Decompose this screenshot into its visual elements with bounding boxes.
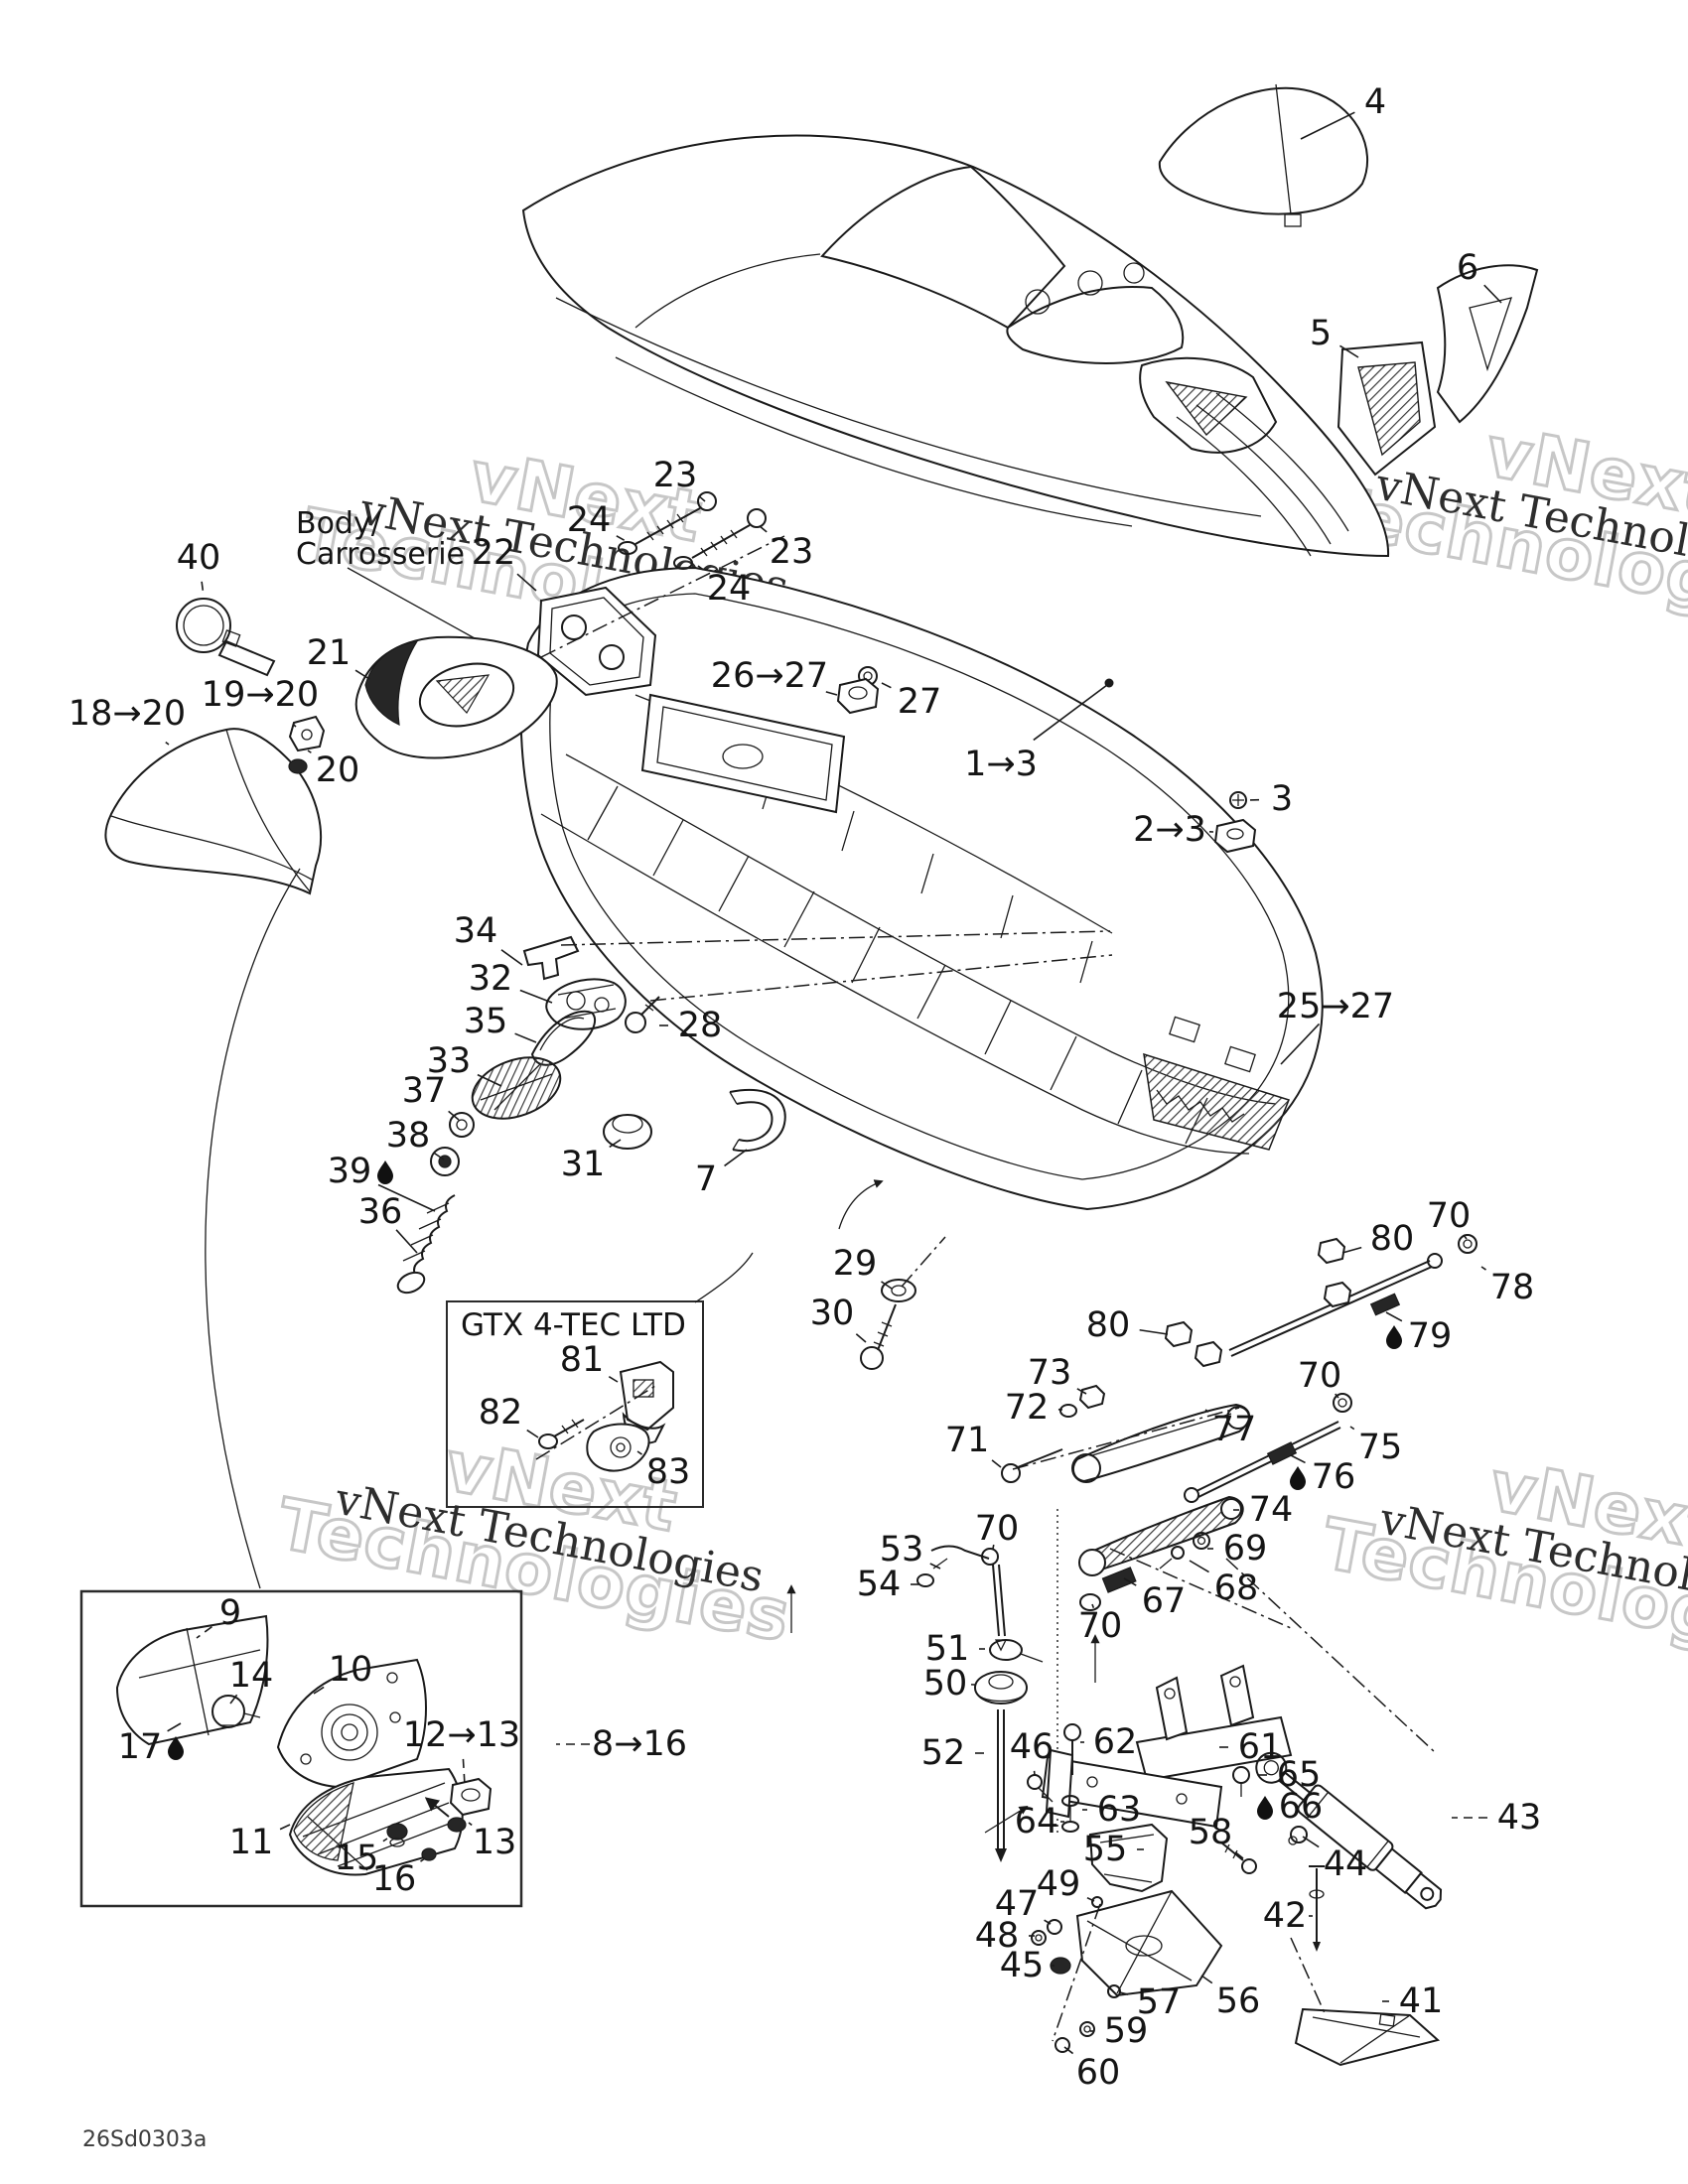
leader-line — [856, 1334, 866, 1342]
part-number-label: 1→3 — [964, 745, 1038, 784]
part-number-label: 54 — [857, 1565, 902, 1604]
callout-26-27: 26→27 — [711, 656, 837, 696]
part-number-label: 72 — [1005, 1388, 1050, 1428]
leader-line — [202, 582, 204, 596]
part-number-label: 41 — [1399, 1981, 1444, 2021]
part-number-label: 61 — [1238, 1727, 1283, 1767]
part-number-label: 28 — [678, 1006, 723, 1045]
callout-79: 79 — [1386, 1312, 1452, 1356]
part-number-label: 35 — [464, 1002, 508, 1041]
leader-line — [463, 1759, 465, 1785]
leader-line — [280, 1825, 290, 1830]
callout-54: 54 — [857, 1565, 921, 1604]
callout-31: 31 — [561, 1140, 621, 1184]
part-number-label: 18→20 — [69, 694, 186, 734]
part-number-label: 76 — [1312, 1457, 1356, 1497]
part-number-label: 23 — [653, 456, 698, 495]
callout-52: 52 — [921, 1733, 985, 1773]
part-number-label: 43 — [1497, 1798, 1542, 1838]
part-number-label: 67 — [1142, 1581, 1187, 1621]
part-number-label: 17 — [118, 1727, 163, 1767]
part-number-label: 64 — [1015, 1802, 1059, 1842]
part-number-label: 9 — [219, 1593, 241, 1633]
drawing-code: 26Sd0303a — [82, 2127, 207, 2152]
leader-line — [1291, 1455, 1306, 1462]
callout-16: 16 — [372, 1858, 425, 1899]
part-number-label: 53 — [880, 1530, 924, 1570]
leader-line — [515, 1033, 536, 1042]
callout-81: 81 — [560, 1340, 618, 1382]
part-number-label: 51 — [925, 1629, 970, 1669]
callout-70: 70 — [1427, 1196, 1472, 1239]
part-number-label: 83 — [646, 1452, 691, 1492]
part-number-label: 70 — [1427, 1196, 1472, 1236]
callout-77: 77 — [1205, 1410, 1256, 1449]
part-number-label: 11 — [229, 1823, 274, 1862]
part-number-label: 12→13 — [403, 1715, 520, 1755]
part-number-label: 49 — [1037, 1864, 1081, 1904]
callout-68: 68 — [1190, 1561, 1258, 1608]
part-number-label: 23 — [770, 532, 814, 572]
leader-line — [527, 1431, 538, 1437]
part-number-label: 6 — [1457, 248, 1478, 288]
part-number-label: 4 — [1364, 82, 1386, 122]
callout-35: 35 — [464, 1002, 536, 1042]
part-number-label: 42 — [1263, 1896, 1308, 1936]
leader-line — [469, 1823, 472, 1825]
callout-8-16: 8→16 — [556, 1724, 687, 1764]
leader-line — [1481, 1267, 1486, 1270]
leader-line — [1190, 1561, 1209, 1572]
part-number-label: 73 — [1028, 1353, 1072, 1393]
leader-line — [1350, 1427, 1354, 1430]
part-number-label: 40 — [177, 538, 221, 578]
leader-line — [308, 751, 311, 752]
callout-59: 59 — [1090, 2011, 1148, 2051]
part-number-label: 38 — [386, 1116, 431, 1156]
callout-19-20: 19→20 — [202, 675, 319, 727]
callout-70: 70 — [1078, 1604, 1123, 1646]
part-number-label: 31 — [561, 1145, 606, 1184]
callout-36: 36 — [358, 1192, 417, 1253]
callout-71: 71 — [945, 1421, 1001, 1467]
bracket-cluster-drawing — [791, 1181, 1291, 2052]
part-number-label: 46 — [1010, 1727, 1055, 1767]
callout-18-20: 18→20 — [69, 694, 186, 745]
part-number-label: 70 — [975, 1509, 1020, 1549]
callout-40: 40 — [177, 538, 221, 596]
callout-80: 80 — [1342, 1219, 1414, 1259]
part-number-label: 7 — [695, 1160, 717, 1199]
part-number-label: 16 — [372, 1859, 417, 1899]
callout-67: 67 — [1124, 1578, 1186, 1621]
callout-45: 45 — [1000, 1946, 1055, 1985]
leader-line — [992, 1460, 1001, 1467]
part-number-label: 78 — [1490, 1268, 1535, 1307]
part-number-label: 79 — [1408, 1316, 1453, 1356]
callout-70: 70 — [1298, 1356, 1342, 1398]
part-number-label: 70 — [1078, 1606, 1123, 1646]
part-number-label: 21 — [307, 633, 352, 673]
part-number-label: 68 — [1214, 1569, 1259, 1608]
part-number-label: 24 — [707, 569, 752, 609]
part-number-label: 74 — [1249, 1490, 1294, 1530]
part-number-label: 60 — [1076, 2053, 1121, 2093]
part-number-label: 63 — [1097, 1790, 1142, 1830]
part-number-label: 66 — [1279, 1787, 1324, 1827]
leader-line — [725, 1150, 747, 1165]
callout-60: 60 — [1064, 2047, 1120, 2093]
part-number-label: 71 — [945, 1421, 990, 1460]
callout-49: 49 — [1037, 1864, 1094, 1904]
callout-10: 10 — [314, 1650, 372, 1694]
part-number-label: 10 — [329, 1650, 373, 1690]
callout-78: 78 — [1481, 1267, 1534, 1307]
callout-42: 42 — [1263, 1896, 1313, 1936]
part-number-label: 75 — [1358, 1428, 1403, 1467]
part-number-label: 50 — [923, 1664, 968, 1704]
part-number-label: 45 — [1000, 1946, 1045, 1985]
callout-83: 83 — [637, 1451, 690, 1492]
callout-34: 34 — [454, 911, 522, 965]
callout-32: 32 — [469, 959, 552, 1003]
leader-line — [1386, 1312, 1402, 1321]
leader-line — [609, 1377, 618, 1382]
part-number-label: 81 — [560, 1340, 605, 1380]
part-number-label: 82 — [479, 1393, 523, 1433]
part-number-label: 34 — [454, 911, 498, 951]
part-number-label: 24 — [567, 500, 612, 540]
part-number-label: 25→27 — [1277, 987, 1394, 1026]
part-number-label: 62 — [1093, 1722, 1138, 1762]
callout-72: 72 — [1005, 1388, 1062, 1428]
callout-70: 70 — [975, 1509, 1020, 1549]
callout-21: 21 — [307, 633, 369, 679]
leader-line — [396, 1230, 417, 1253]
part-number-label: 69 — [1223, 1529, 1268, 1569]
leader-line — [520, 991, 552, 1003]
part-number-label: 29 — [833, 1244, 878, 1284]
oil-droplet-icon — [1257, 1796, 1273, 1820]
callout-58: 58 — [1189, 1813, 1243, 1858]
oil-droplet-icon — [1386, 1325, 1402, 1349]
part-number-label: 20 — [316, 751, 360, 790]
callout-7: 7 — [695, 1150, 747, 1199]
part-number-label: 30 — [810, 1294, 855, 1333]
part-number-label: 58 — [1189, 1813, 1233, 1852]
section-label-line2: Carrosserie — [296, 537, 465, 572]
callout-75: 75 — [1350, 1427, 1402, 1467]
oil-droplet-icon — [377, 1160, 393, 1184]
callout-50: 50 — [923, 1664, 975, 1704]
callout-43: 43 — [1452, 1798, 1541, 1838]
part-number-label: 32 — [469, 959, 513, 999]
part-number-label: 8→16 — [592, 1724, 687, 1764]
callout-23: 23 — [653, 456, 705, 501]
callout-64: 64 — [1015, 1802, 1064, 1842]
leader-line — [1201, 1976, 1212, 1983]
part-number-label: 44 — [1324, 1844, 1368, 1884]
part-number-label: 56 — [1216, 1981, 1261, 2021]
leader-line — [760, 526, 767, 532]
callout-51: 51 — [925, 1629, 985, 1669]
part-number-label: 19→20 — [202, 675, 319, 715]
callout-82: 82 — [479, 1393, 538, 1437]
callout-29: 29 — [833, 1244, 892, 1289]
callout-24: 24 — [698, 566, 751, 609]
callout-3: 3 — [1249, 779, 1293, 819]
callout-69: 69 — [1207, 1529, 1267, 1569]
leader-line — [449, 1111, 459, 1120]
callout-11: 11 — [229, 1823, 290, 1862]
part-number-label: 80 — [1086, 1305, 1131, 1345]
callout-80: 80 — [1086, 1305, 1168, 1345]
leader-line — [166, 743, 169, 745]
section-label-line1: Body/ — [296, 506, 382, 541]
leader-line — [1303, 1837, 1319, 1847]
part-number-label: 13 — [473, 1823, 517, 1862]
part-number-label: 39 — [328, 1152, 372, 1191]
leader-line — [1140, 1330, 1168, 1334]
exploded-parts-diagram: vNextTechnologiesvNext TechnologiesvNext… — [0, 0, 1688, 2184]
part-number-label: 77 — [1212, 1410, 1257, 1449]
part-number-label: 70 — [1298, 1356, 1342, 1396]
part-number-label: 26→27 — [711, 656, 828, 696]
callout-56: 56 — [1201, 1976, 1260, 2021]
callout-62: 62 — [1080, 1722, 1137, 1762]
callout-20: 20 — [308, 751, 359, 790]
callout-44: 44 — [1303, 1837, 1367, 1884]
part-number-label: 55 — [1083, 1830, 1128, 1869]
callout-66: 66 — [1257, 1787, 1323, 1827]
callout-30: 30 — [810, 1294, 866, 1342]
part-number-label: 80 — [1370, 1219, 1415, 1259]
part-number-label: 14 — [229, 1656, 274, 1696]
part-number-label: 27 — [898, 682, 942, 722]
windshield-drawing — [1160, 84, 1367, 226]
callout-13: 13 — [469, 1823, 516, 1862]
part-number-label: 5 — [1310, 314, 1332, 353]
oil-droplet-icon — [1290, 1466, 1306, 1490]
leader-line — [1342, 1248, 1361, 1253]
callout-2-3: 2→3 — [1133, 810, 1213, 850]
part-number-label: 37 — [402, 1071, 447, 1111]
part-number-label: 22 — [472, 533, 516, 573]
parts-diagram-page: vNextTechnologiesvNext TechnologiesvNext… — [0, 0, 1688, 2184]
part-number-label: 3 — [1271, 779, 1293, 819]
part-number-label: 36 — [358, 1192, 403, 1232]
callout-38: 38 — [386, 1116, 444, 1160]
callout-76: 76 — [1290, 1455, 1355, 1497]
part-number-label: 52 — [921, 1733, 966, 1773]
gtx-box-label: GTX 4-TEC LTD — [461, 1307, 686, 1343]
part-number-label: 59 — [1104, 2011, 1149, 2051]
part-number-label: 2→3 — [1133, 810, 1206, 850]
